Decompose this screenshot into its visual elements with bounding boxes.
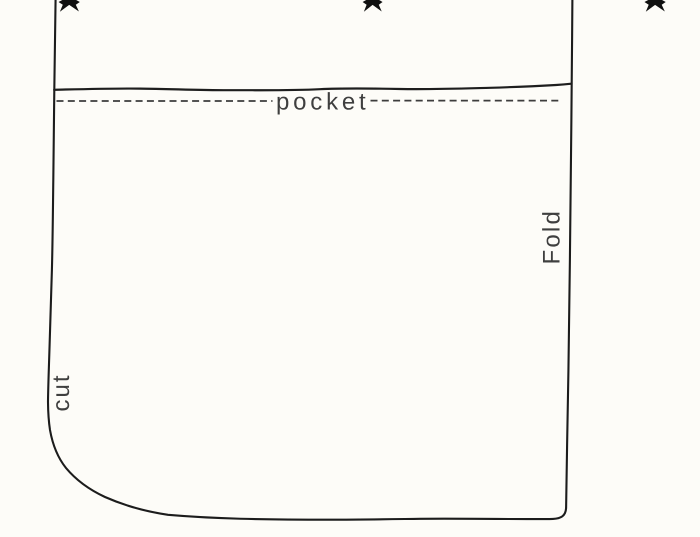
svg-text:Fold: Fold bbox=[539, 209, 566, 265]
svg-text:pocket: pocket bbox=[276, 89, 370, 116]
svg-text:cut: cut bbox=[48, 373, 75, 411]
